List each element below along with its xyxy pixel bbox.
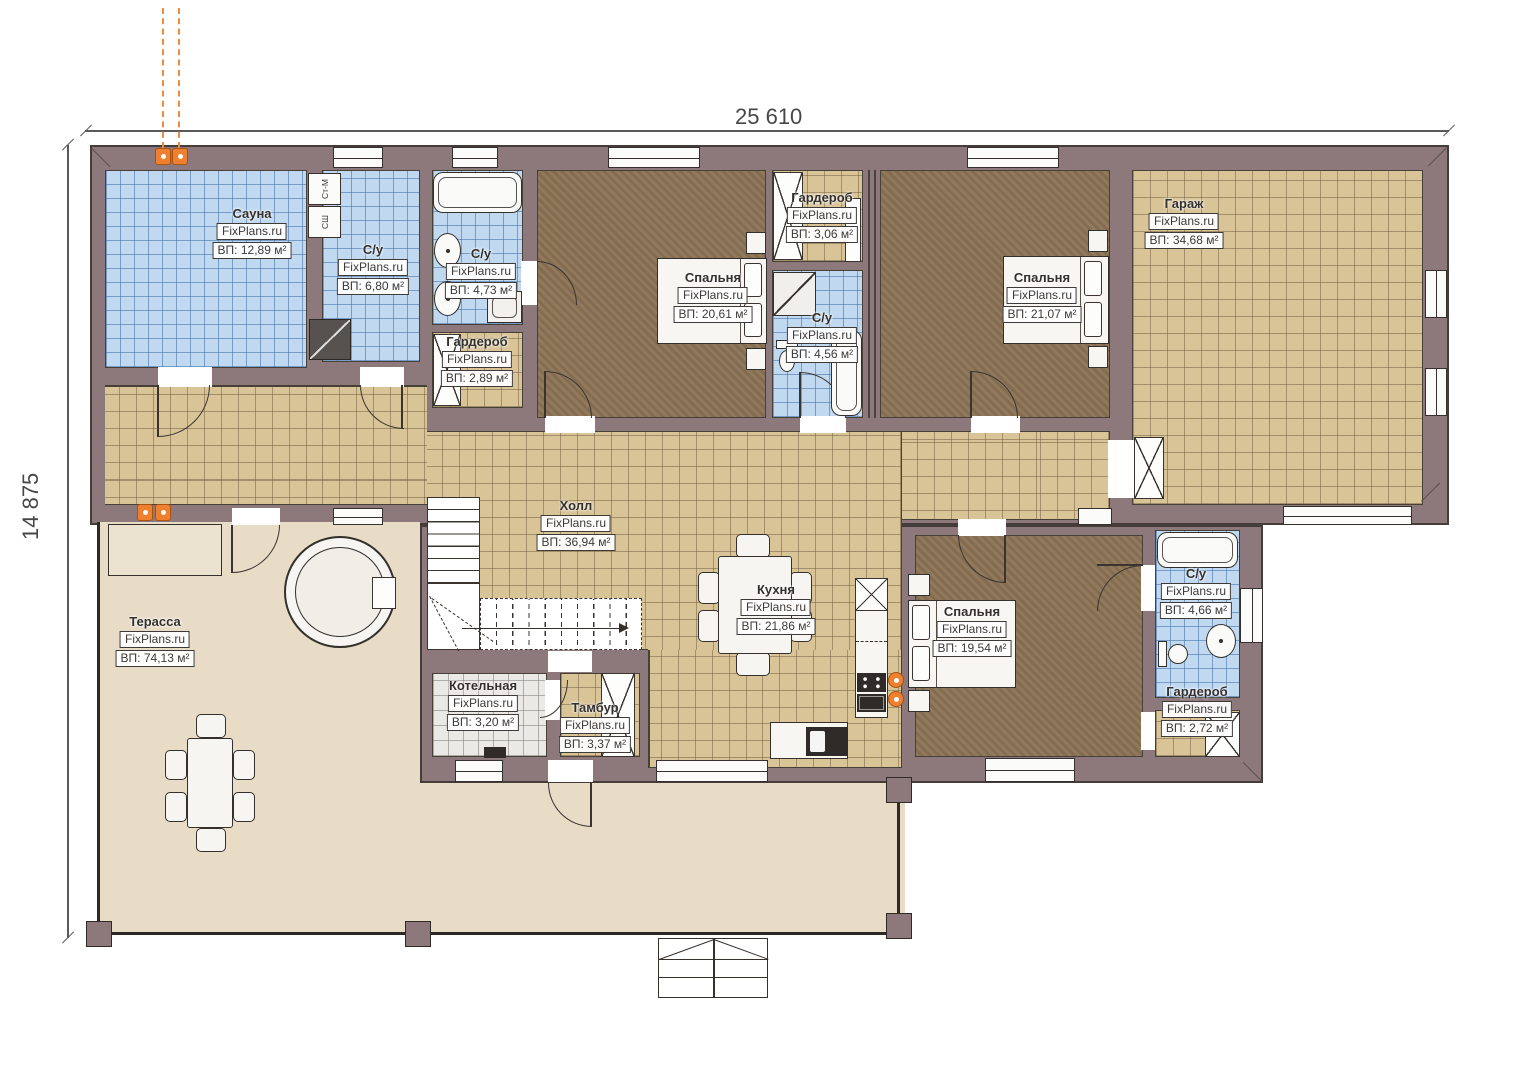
gas-point-icon [888, 691, 904, 707]
terrace-railing [897, 798, 900, 920]
toilet-icon [1168, 644, 1188, 664]
room-area: ВП: 3,20 м² [447, 714, 519, 731]
room-watermark: FixPlans.ru [1007, 287, 1077, 304]
room-area: ВП: 2,89 м² [441, 370, 513, 387]
room-label-terrace: Терасса FixPlans.ru ВП: 74,13 м² [116, 614, 195, 667]
room-area: ВП: 4,56 м² [786, 346, 858, 363]
jacuzzi-step [372, 577, 396, 609]
entrance-porch [658, 938, 768, 998]
chimney-marker [137, 504, 153, 521]
chimney-dashed-line [178, 8, 180, 148]
room-name: Холл [537, 498, 616, 513]
dimension-width-label: 25 610 [735, 104, 802, 130]
room-name: Сауна [213, 206, 292, 221]
room-name: Гараж [1145, 196, 1224, 211]
terrace-post [886, 913, 912, 939]
room-name: Гардероб [786, 190, 858, 205]
back-door [1078, 508, 1112, 525]
terrace-bench [108, 524, 222, 576]
chair-icon [736, 534, 770, 558]
room-area: ВП: 6,80 м² [337, 278, 409, 295]
window [333, 508, 383, 525]
room-watermark: FixPlans.ru [338, 259, 408, 276]
room-watermark: FixPlans.ru [541, 515, 611, 532]
washing-machine: Ст-М [308, 173, 341, 205]
room-name: Гардероб [441, 334, 513, 349]
chair-icon [736, 652, 770, 676]
room-watermark: FixPlans.ru [446, 263, 516, 280]
window [985, 758, 1075, 782]
room-label-su-4: С/у FixPlans.ru ВП: 4,66 м² [1160, 566, 1232, 619]
room-terrace [420, 783, 905, 935]
staircase-flight [427, 497, 480, 583]
room-label-wardrobe-3: Гардероб FixPlans.ru ВП: 2,72 м² [1161, 684, 1233, 737]
room-name: Кухня [737, 582, 816, 597]
bathtub-icon [1157, 532, 1238, 568]
room-watermark: FixPlans.ru [560, 717, 630, 734]
pillow-icon [912, 605, 930, 640]
nightstand-icon [908, 574, 930, 596]
chair-icon [233, 792, 255, 822]
room-area: ВП: 34,68 м² [1145, 232, 1224, 249]
terrace-table [187, 738, 233, 828]
room-area: ВП: 21,86 м² [737, 618, 816, 635]
window [455, 760, 503, 782]
shower-tray-icon [309, 319, 351, 360]
room-watermark: FixPlans.ru [1162, 701, 1232, 718]
room-area: ВП: 19,54 м² [933, 640, 1012, 657]
room-name: С/у [786, 310, 858, 325]
room-label-kitchen: Кухня FixPlans.ru ВП: 21,86 м² [737, 582, 816, 635]
room-label-bedroom-2: Спальня FixPlans.ru ВП: 21,07 м² [1003, 270, 1082, 323]
pillow-icon [1084, 302, 1102, 337]
chair-icon [698, 572, 720, 604]
chimney-marker [155, 148, 171, 165]
room-label-su-2: С/у FixPlans.ru ВП: 4,73 м² [445, 246, 517, 299]
staircase-upper-flight [480, 598, 642, 650]
sink-icon [1206, 624, 1236, 658]
room-label-tambour: Тамбур FixPlans.ru ВП: 3,37 м² [559, 700, 631, 753]
room-watermark: FixPlans.ru [1149, 213, 1219, 230]
dimension-line-left [67, 145, 69, 938]
room-label-sauna: Сауна FixPlans.ru ВП: 12,89 м² [213, 206, 292, 259]
room-name: С/у [1160, 566, 1232, 581]
terrace-slider-door [656, 760, 768, 782]
stove-icon [857, 673, 886, 692]
window [333, 147, 383, 168]
room-name: Спальня [933, 604, 1012, 619]
stair-direction-arrow [462, 628, 627, 629]
room-name: С/у [337, 242, 409, 257]
room-name: Тамбур [559, 700, 631, 715]
room-label-boiler: Котельная FixPlans.ru ВП: 3,20 м² [447, 678, 519, 731]
garage-gate [1283, 506, 1412, 525]
room-name: С/у [445, 246, 517, 261]
room-area: ВП: 20,61 м² [674, 306, 753, 323]
chair-icon [196, 714, 226, 738]
chair-icon [196, 828, 226, 852]
window [1240, 588, 1263, 643]
room-label-su-1: С/у FixPlans.ru ВП: 6,80 м² [337, 242, 409, 295]
room-name: Котельная [447, 678, 519, 693]
nightstand-icon [1088, 346, 1108, 368]
room-watermark: FixPlans.ru [448, 695, 518, 712]
window [608, 147, 700, 168]
room-watermark: FixPlans.ru [1161, 583, 1231, 600]
chimney-dashed-line [162, 8, 164, 148]
room-watermark: FixPlans.ru [120, 631, 190, 648]
boiler-unit-icon [484, 747, 506, 758]
window [1425, 270, 1447, 318]
room-area: ВП: 21,07 м² [1003, 306, 1082, 323]
window [967, 147, 1059, 168]
room-label-su-3: С/у FixPlans.ru ВП: 4,56 м² [786, 310, 858, 363]
room-name: Спальня [1003, 270, 1082, 285]
window [452, 147, 498, 168]
bathtub-icon [433, 172, 522, 213]
room-watermark: FixPlans.ru [787, 327, 857, 344]
gas-point-icon [888, 672, 904, 688]
dimension-line-top [85, 130, 1449, 132]
room-area: ВП: 12,89 м² [213, 242, 292, 259]
nightstand-icon [908, 690, 930, 712]
pillow-icon [912, 646, 930, 681]
floor-plan: 25 610 14 875 [0, 0, 1528, 1080]
chair-icon [165, 750, 187, 780]
room-label-hall: Холл FixPlans.ru ВП: 36,94 м² [537, 498, 616, 551]
window [1425, 368, 1447, 416]
room-label-wardrobe-1: Гардероб FixPlans.ru ВП: 2,89 м² [441, 334, 513, 387]
room-area: ВП: 4,66 м² [1160, 602, 1232, 619]
terrace-post [886, 777, 912, 803]
chair-icon [698, 610, 720, 642]
room-watermark: FixPlans.ru [741, 599, 811, 616]
pillow-icon [1084, 261, 1102, 296]
room-watermark: FixPlans.ru [678, 287, 748, 304]
room-name: Терасса [116, 614, 195, 629]
toilet-icon [1158, 641, 1167, 667]
room-area: ВП: 3,06 м² [786, 226, 858, 243]
room-hall [902, 432, 1110, 520]
room-area: ВП: 3,37 м² [559, 736, 631, 753]
chimney-marker [155, 504, 171, 521]
nightstand-icon [746, 232, 766, 254]
room-watermark: FixPlans.ru [442, 351, 512, 368]
garage-door-leaf [1134, 437, 1164, 499]
kitchen-hood-icon [855, 578, 888, 611]
room-label-wardrobe-2: Гардероб FixPlans.ru ВП: 3,06 м² [786, 190, 858, 243]
terrace-post [405, 921, 431, 947]
room-area: ВП: 74,13 м² [116, 650, 195, 667]
drying-cabinet: СШ [308, 206, 341, 238]
room-area: ВП: 2,72 м² [1161, 720, 1233, 737]
room-area: ВП: 36,94 м² [537, 534, 616, 551]
oven-icon [857, 694, 886, 712]
chair-icon [233, 750, 255, 780]
room-watermark: FixPlans.ru [217, 223, 287, 240]
dimension-height-label: 14 875 [18, 473, 44, 540]
chair-icon [165, 792, 187, 822]
nightstand-icon [1088, 230, 1108, 252]
terrace-post [86, 921, 112, 947]
room-label-garage: Гараж FixPlans.ru ВП: 34,68 м² [1145, 196, 1224, 249]
room-area: ВП: 4,73 м² [445, 282, 517, 299]
chimney-marker [172, 148, 188, 165]
room-label-bedroom-3: Спальня FixPlans.ru ВП: 19,54 м² [933, 604, 1012, 657]
room-watermark: FixPlans.ru [937, 621, 1007, 638]
nightstand-icon [746, 348, 766, 370]
room-label-bedroom-1: Спальня FixPlans.ru ВП: 20,61 м² [674, 270, 753, 323]
room-sauna [105, 170, 307, 368]
room-name: Спальня [674, 270, 753, 285]
room-name: Гардероб [1161, 684, 1233, 699]
room-watermark: FixPlans.ru [787, 207, 857, 224]
